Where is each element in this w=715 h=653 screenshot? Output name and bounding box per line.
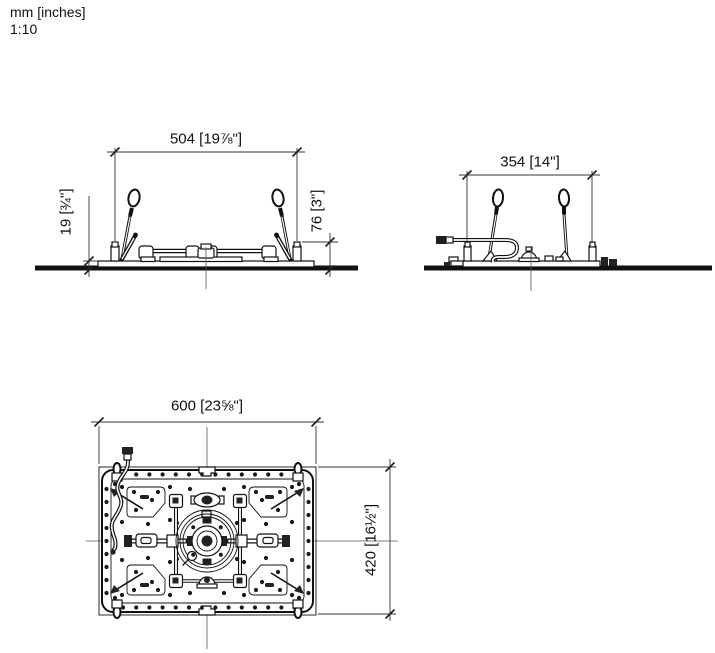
units-label: mm [inches] [10,4,85,21]
front-height-dimension-text: 76 [3"] [309,190,326,233]
side-center-fittings [519,247,563,262]
technical-drawing-canvas [0,0,715,653]
front-dim-reveal [83,196,98,277]
side-hose [436,236,517,262]
front-left-post [111,242,119,261]
front-left-cable [122,189,141,259]
side-elevation-view [424,171,712,292]
side-right-post [589,242,596,261]
side-right-brackets [601,257,617,266]
side-width-dimension-text: 354 [14"] [500,154,560,171]
front-piping [139,244,278,262]
side-dim-width [459,171,600,244]
side-left-cable [483,189,504,261]
plan-dim-height [318,459,396,621]
side-right-cable [557,189,571,261]
plan-view [86,418,398,650]
drawing-sheet: mm [inches] 1:10 504 [19⅞"] 19 [¾"] 76 [… [0,0,715,653]
plan-width-dimension-text: 600 [23⅝"] [171,398,243,415]
plan-height-dimension-text: 420 [16½"] [363,504,380,576]
side-left-brackets [444,257,463,266]
front-width-dimension-text: 504 [19⅞"] [170,131,242,148]
front-reveal-dimension-text: 19 [¾"] [58,188,75,235]
front-right-post [293,242,301,261]
side-hose-connector [436,236,446,244]
side-left-post [464,242,471,261]
plan-hose-connector [122,447,133,454]
scale-label: 1:10 [10,21,37,38]
